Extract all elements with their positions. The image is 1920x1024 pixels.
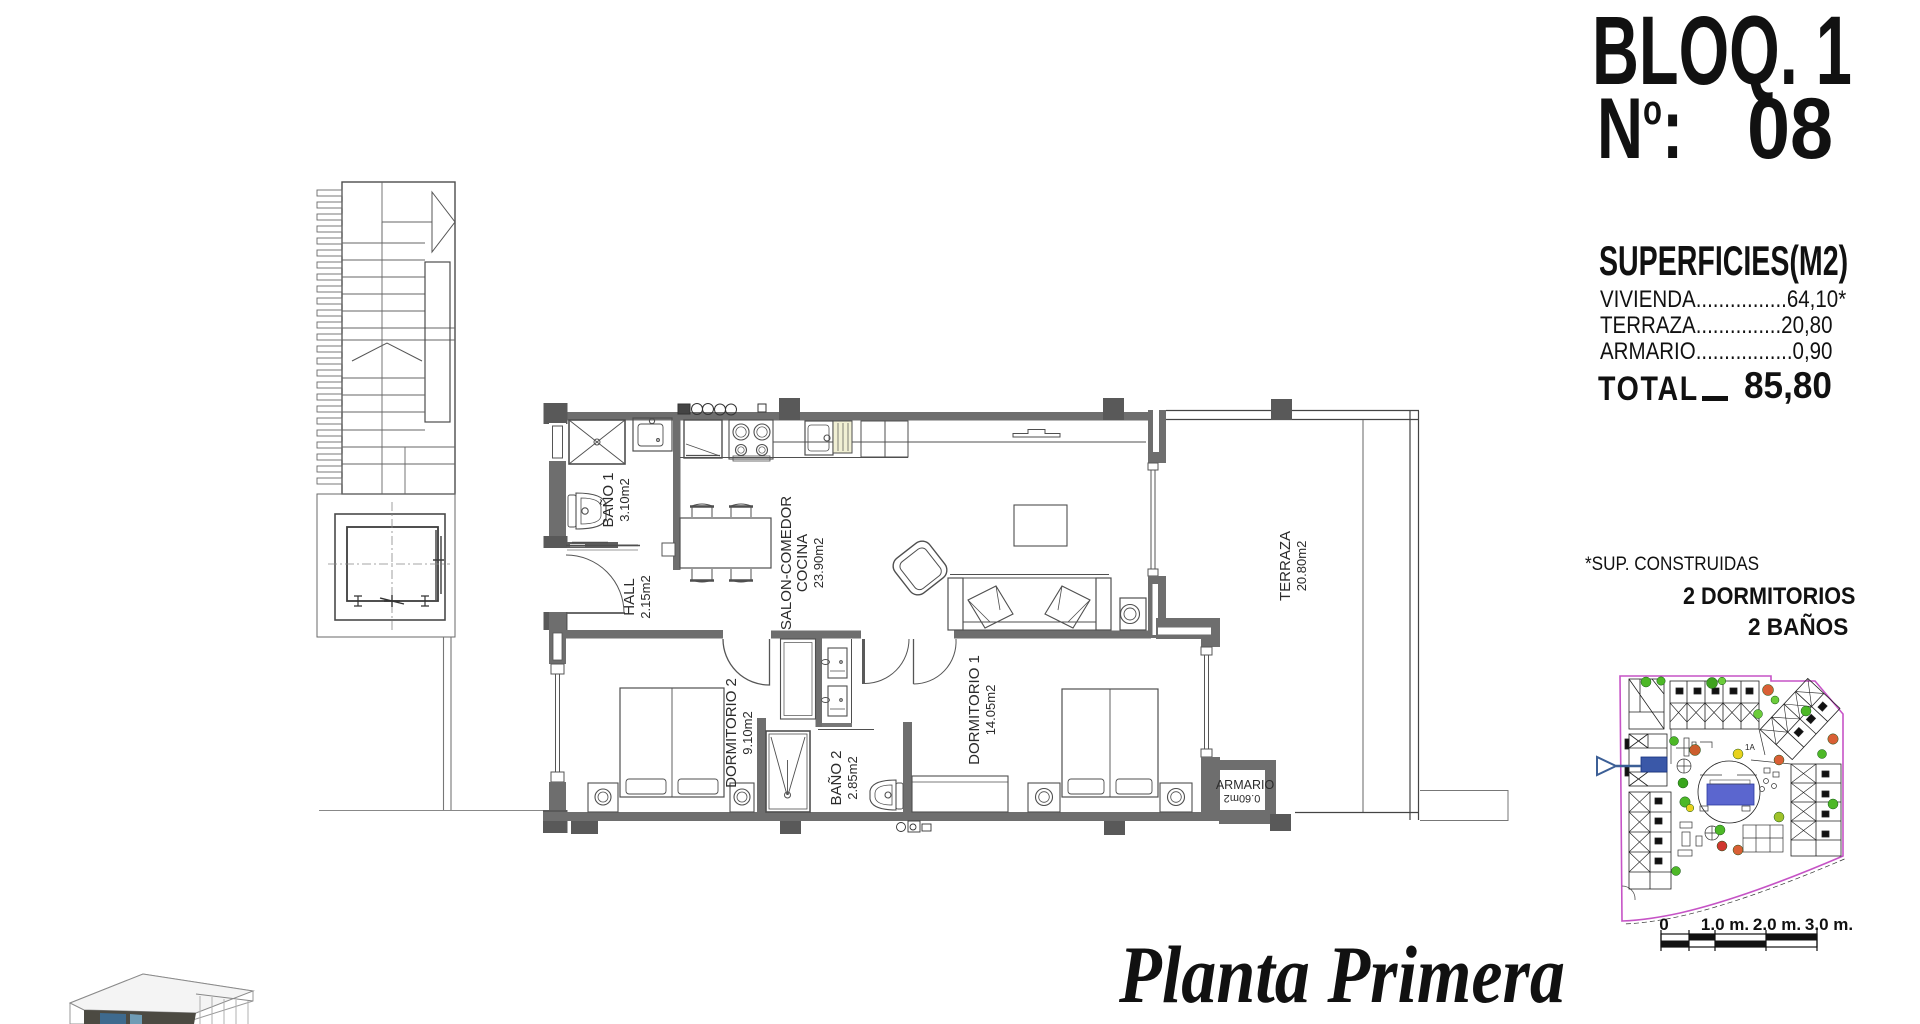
svg-text:SUPERFICIES(M2): SUPERFICIES(M2) — [1599, 236, 1848, 284]
svg-text:14.05m2: 14.05m2 — [983, 685, 998, 736]
svg-text:2.0 m.: 2.0 m. — [1753, 915, 1801, 934]
svg-text:*SUP. CONSTRUIDAS: *SUP. CONSTRUIDAS — [1585, 552, 1759, 574]
svg-text:Planta Primera: Planta Primera — [1118, 929, 1565, 1020]
svg-text:TOTAL: TOTAL — [1598, 370, 1699, 408]
svg-text:08: 08 — [1747, 81, 1833, 177]
svg-text:HALL: HALL — [621, 578, 638, 616]
svg-text:TERRAZA...............20,80: TERRAZA...............20,80 — [1600, 312, 1832, 339]
svg-text:No:: No: — [1597, 82, 1683, 177]
svg-text:2.85m2: 2.85m2 — [845, 756, 860, 799]
svg-text:20.80m2: 20.80m2 — [1294, 541, 1309, 592]
svg-text:3.10m2: 3.10m2 — [617, 478, 632, 521]
svg-text:BAÑO 2: BAÑO 2 — [828, 750, 845, 805]
svg-text:1A: 1A — [1745, 743, 1755, 752]
svg-text:0.60m2: 0.60m2 — [1224, 792, 1261, 804]
svg-text:DORMITORIO 1: DORMITORIO 1 — [966, 655, 983, 765]
svg-text:3.0 m.: 3.0 m. — [1805, 915, 1853, 934]
svg-text:2 BAÑOS: 2 BAÑOS — [1748, 612, 1848, 640]
svg-text:DORMITORIO 2: DORMITORIO 2 — [723, 678, 740, 788]
svg-text:1.0 m.: 1.0 m. — [1701, 915, 1749, 934]
svg-text:VIVIENDA................64,10*: VIVIENDA................64,10* — [1600, 286, 1846, 313]
svg-text:2.15m2: 2.15m2 — [638, 575, 653, 618]
svg-text:COCINA: COCINA — [794, 534, 811, 592]
svg-text:TERRAZA: TERRAZA — [1277, 531, 1294, 601]
svg-text:2 DORMITORIOS: 2 DORMITORIOS — [1683, 582, 1855, 609]
svg-text:23.90m2: 23.90m2 — [811, 538, 826, 589]
svg-text:BAÑO 1: BAÑO 1 — [600, 472, 617, 527]
svg-text:ARMARIO.................0,90: ARMARIO.................0,90 — [1600, 338, 1832, 365]
svg-text:SALON-COMEDOR: SALON-COMEDOR — [778, 496, 795, 630]
svg-text:9.10m2: 9.10m2 — [740, 711, 755, 754]
svg-text:85,80: 85,80 — [1744, 364, 1832, 406]
svg-text:ARMARIO: ARMARIO — [1216, 778, 1275, 792]
